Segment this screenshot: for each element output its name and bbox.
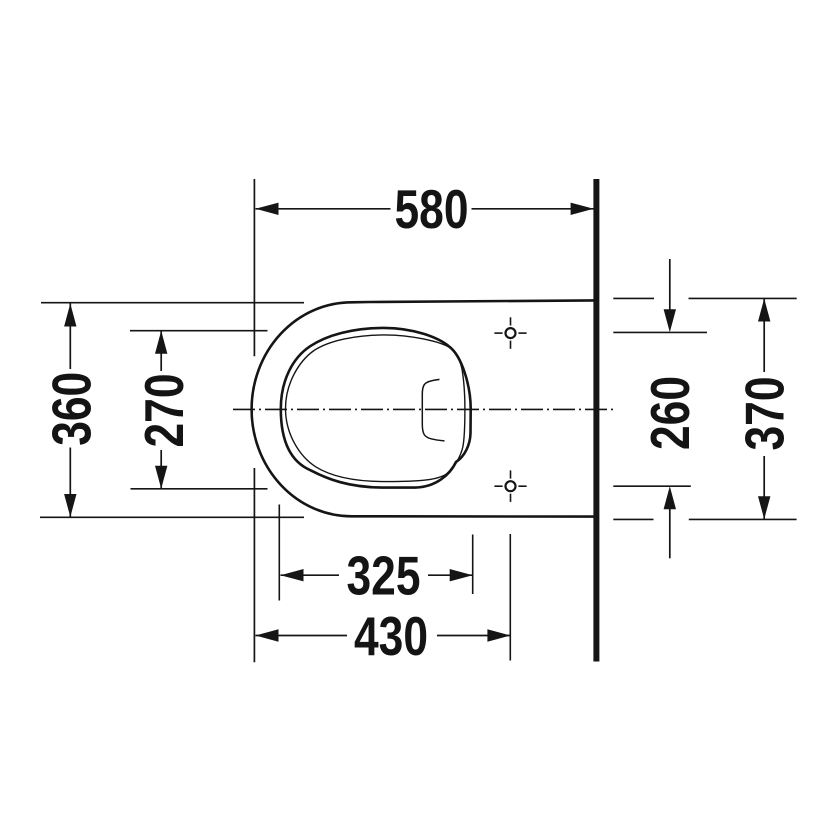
- svg-text:370: 370: [733, 377, 795, 451]
- svg-text:325: 325: [347, 545, 421, 607]
- svg-text:270: 270: [133, 374, 195, 448]
- svg-text:430: 430: [354, 605, 428, 667]
- svg-text:260: 260: [639, 376, 701, 450]
- svg-text:580: 580: [395, 178, 469, 240]
- svg-text:360: 360: [40, 372, 102, 446]
